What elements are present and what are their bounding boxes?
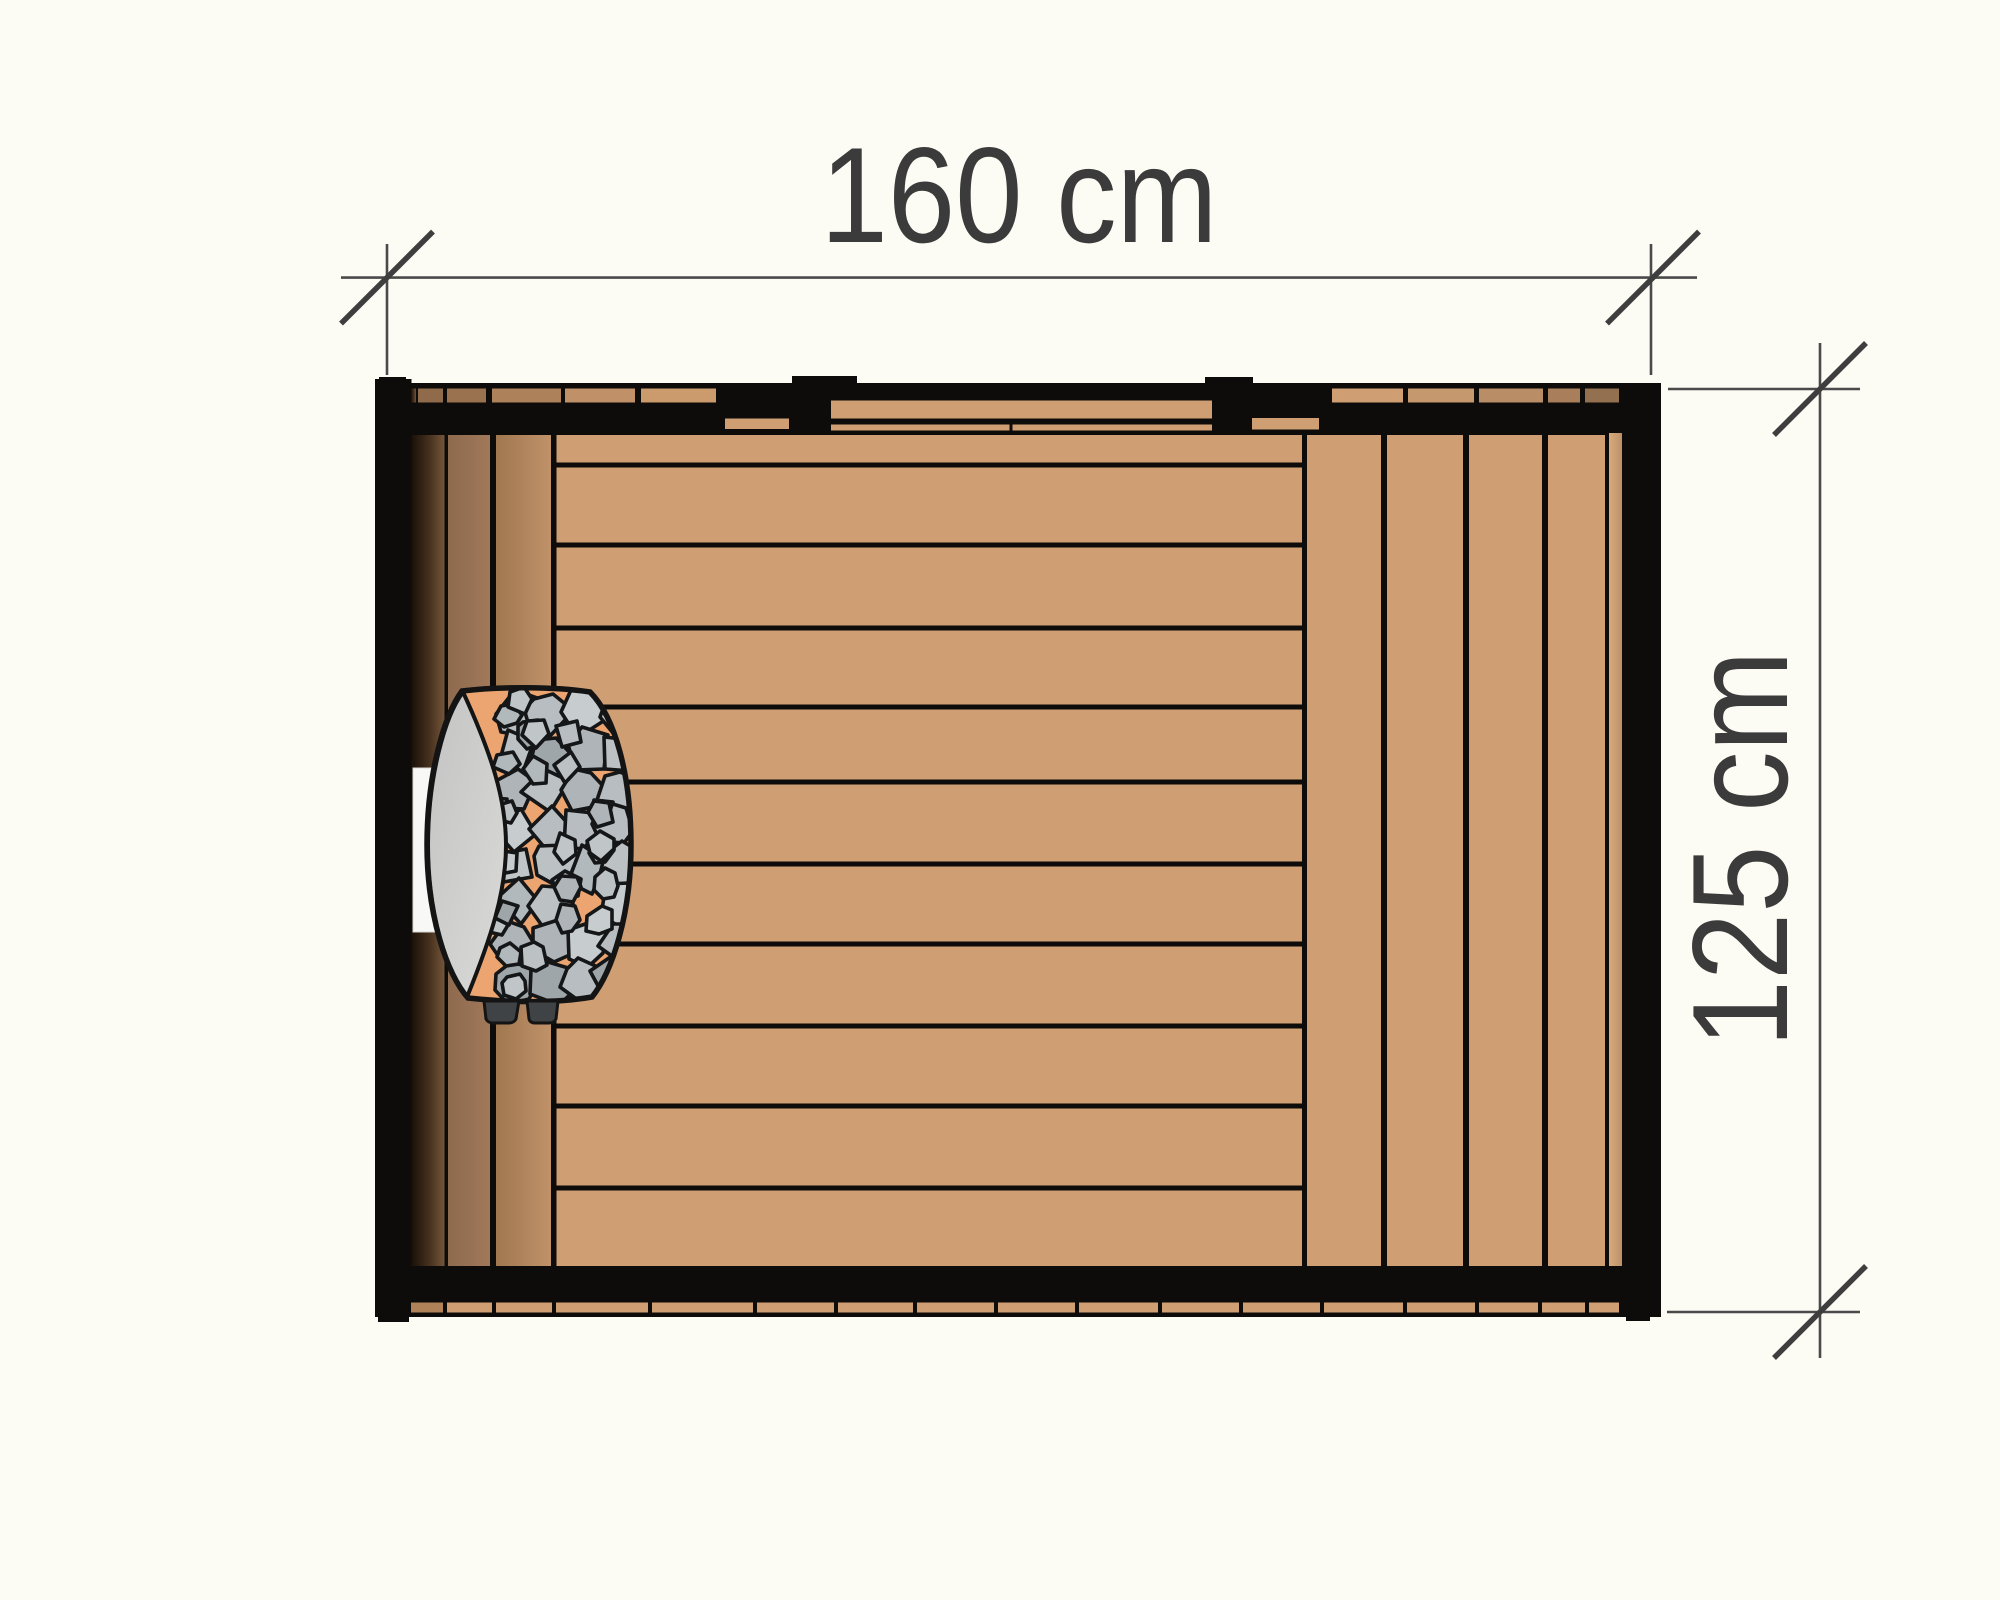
svg-text:160 cm: 160 cm [821,119,1218,271]
svg-text:125 cm: 125 cm [1664,651,1816,1048]
